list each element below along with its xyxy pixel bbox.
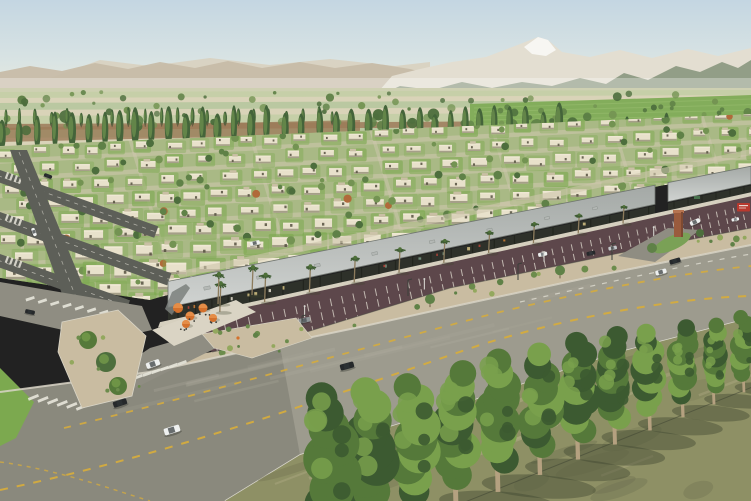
villa-parapet [501,209,517,211]
poplar-highlight [96,115,98,124]
villa-door [453,197,455,200]
farm-tree [99,90,103,94]
villa-shade [75,257,91,259]
verge-shrub [489,291,494,296]
villa-parapet [130,279,150,281]
villa-parapet [15,252,33,254]
villa-parapet [110,144,121,145]
street-tree [514,172,520,178]
villa-parapet [0,152,11,153]
villa-parapet [555,154,571,155]
cafe-chair [173,313,175,315]
farm-tree [593,104,597,108]
entry-tree [647,243,657,253]
street-tree [345,211,352,218]
poplar-highlight [191,109,193,121]
farm-tree [501,98,505,102]
shop-glint [467,247,470,250]
villa-shade [167,161,179,163]
villa-door [124,233,126,236]
villa-parapet [136,141,147,142]
tree-highlight [440,423,459,442]
villa-door [187,214,189,217]
palm-shadow [248,294,264,298]
villa-parapet [256,221,271,223]
villa-door [281,190,283,193]
poplar-highlight [127,109,129,121]
shop-glint [283,286,285,289]
tree-highlight [606,359,616,369]
tree-highlight [312,392,331,411]
poplar-highlight [50,114,53,124]
farm-tree [670,106,674,110]
tree-foliage [677,319,694,336]
poplar-highlight [282,116,286,136]
villa-parapet [315,218,332,220]
median-shrub [76,336,80,340]
villa-shade [439,151,452,153]
poplar-highlight [382,109,386,133]
tree-highlight [565,387,580,402]
verge-shrub [537,272,541,276]
farm-tree [712,99,718,105]
palm-crown [578,213,581,216]
tree-shade-side [685,352,694,361]
palm-crown [623,205,626,208]
cafe-chair [205,314,207,316]
villa-door [89,235,91,238]
tree-shade-side [616,386,629,399]
tree-highlight [640,359,652,371]
villa-wing [149,259,158,263]
median-shrub [116,388,120,392]
villa-parapet [241,137,253,138]
street-tree [647,147,652,152]
street-tree [169,241,176,248]
shop-glint [479,245,481,247]
villa-parapet [278,169,294,170]
villa-parapet [61,214,78,216]
villa-shade [94,186,109,188]
street-tree [186,174,192,180]
villa-door [71,183,73,185]
villa-door [35,148,37,150]
bed-shrub [271,344,275,348]
poplar-highlight [65,110,67,122]
villa-wing [41,179,47,182]
villa-shade [582,142,594,144]
villa-shade [229,161,241,163]
shop-glint [231,297,233,300]
street-tree [486,155,493,162]
villa-shade [1,242,15,244]
villa-door [471,146,473,148]
villa-wing [304,202,311,205]
villa-door [638,119,640,121]
cafe-chair [183,313,185,315]
villa-door [170,197,172,200]
villa-wing [694,128,699,131]
villa-parapet [608,136,623,137]
villa-parapet [216,138,230,139]
verge-shrub [454,291,457,294]
villa-door [262,173,264,175]
villa-shade [662,139,677,141]
street-tree [501,142,509,150]
street-tree [146,139,154,147]
poplar-highlight [264,109,268,134]
farm-tree [672,91,679,98]
villa-parapet [347,219,361,221]
villa-door [114,145,116,147]
villa-parapet [521,139,533,140]
villa-parapet [254,171,267,172]
villa-shade [334,206,350,208]
villa-shade [421,205,434,207]
villa-door [576,194,578,197]
palm-crown [533,222,536,225]
villa-door [490,178,492,181]
farm-tree [154,111,160,117]
villa-door [411,215,413,218]
villa-wing [401,177,408,180]
street-tree [609,121,616,128]
villa-door [615,188,617,191]
bed-shrub [246,324,250,328]
farm-tree [336,92,339,95]
farm-tree [523,97,528,102]
villa-door [313,169,315,171]
villa-door [375,185,377,188]
villa-wing [135,293,143,297]
tree-highlight [599,335,611,347]
street-tree [92,167,100,175]
villa-parapet [432,127,444,128]
tree-highlight [672,344,681,353]
villa-door [259,158,261,160]
tree-highlight [304,409,327,432]
villa-shade [241,141,253,143]
cafe-chair [211,322,213,324]
palm-crown [443,239,446,242]
street-tree [320,178,325,183]
villa-shade [406,151,420,153]
farm-tree [609,111,617,119]
villa-door [387,148,389,150]
street-tree [310,163,317,170]
tree-highlight [358,416,373,431]
villa-door [344,188,346,191]
villa-shade [192,146,205,148]
villa-door [97,184,99,186]
farm-tree [43,95,51,103]
villa-door [146,164,148,166]
villa-door [290,154,292,156]
farm-tree [273,91,277,95]
street-tree [344,195,352,203]
villa-door [290,224,292,227]
verge-shrub [709,240,712,243]
villa-shade [49,205,65,207]
villa-door [19,257,21,260]
tree-highlight [705,362,712,369]
farm-tree [70,92,75,97]
street-tree [356,221,363,228]
poplar-highlight [80,114,82,123]
cafe-chair [199,313,201,315]
poplar-highlight [16,123,20,142]
tree-shade-side [652,373,663,384]
villa-wing [232,154,237,157]
verge-shrub [743,236,747,240]
villa-door [527,141,529,143]
villa-shade [529,165,545,167]
farm-tree [670,101,676,107]
villa-wing [338,182,345,185]
poplar-highlight [223,113,225,122]
villa-shade [685,118,698,120]
villa-door [706,151,708,153]
villa-door [379,134,381,136]
villa-parapet [256,156,271,157]
villa-door [284,206,286,209]
villa-parapet [189,174,202,175]
street-tree [493,171,502,180]
villa-door [342,202,344,205]
villa-door [514,179,516,182]
villa-shade [403,133,414,135]
villa-shade [130,286,150,288]
poplar-highlight [144,110,146,121]
poplar-highlight [231,110,235,136]
tree-foliage [527,342,551,366]
villa-door [279,173,281,175]
palm-crown [264,273,268,277]
poplar-highlight [165,111,170,137]
tree-shade-side [581,377,593,389]
villa-door [306,208,308,211]
street-tree [589,157,595,163]
villa-parapet [128,179,142,180]
tree-shade-side [333,482,350,499]
villa-shade [93,222,108,224]
villa-wing [350,149,356,152]
villa-wing [162,192,168,195]
villa-shade [61,221,78,223]
poplar-highlight [52,116,56,140]
tree-shade-side [458,439,473,454]
villa-door [221,191,223,194]
villa-shade [84,238,103,240]
villa-door [199,229,201,232]
villa-shade [168,232,187,234]
villa-door [455,183,457,186]
villa-wing [482,173,488,176]
villa-wing [197,223,204,226]
villa-shade [107,166,119,168]
farm-tree [583,113,592,122]
street-tree [155,156,163,164]
bed-shrub [227,345,233,351]
villa-parapet [603,170,618,171]
verge-shrub [730,242,735,247]
villa-wing [124,209,131,212]
villa-parapet [550,140,564,141]
rendering-canvas: Aerial architectural rendering of a mast… [0,0,751,501]
villa-shade [160,201,174,203]
farm-tree [440,98,445,103]
villa-door [113,201,115,204]
street-tree [451,161,457,167]
villa-wing [231,237,239,240]
villa-shade [364,190,380,192]
farm-tree [528,95,534,101]
villa-door [359,135,361,137]
villa-parapet [439,145,452,146]
villa-shade [321,155,334,157]
villa-shade [86,274,104,276]
farm-tree [153,103,159,109]
villa-door [176,158,178,160]
villa-door [420,163,422,165]
villa-shade [481,181,495,183]
shop-glint [188,306,190,309]
villa-door [219,139,221,141]
villa-shade [521,145,533,147]
street-tree [388,197,396,205]
cafe-chair [193,320,195,322]
street-tree [17,239,25,247]
farm-tree [178,93,185,100]
villa-shade [107,202,124,204]
villa-wing [628,167,634,170]
villa-shade [547,180,564,182]
villa-door [629,171,631,174]
villa-shade [141,167,156,169]
villa-parapet [354,167,369,168]
villa-parapet [471,158,487,159]
villa-door [435,131,437,133]
cafe-chair [180,328,182,330]
villa-door [664,152,666,154]
villa-shade [638,158,653,160]
villa-door [234,243,236,246]
villa-shade [491,133,505,135]
poplar-highlight [116,114,120,138]
street-tree [373,196,380,203]
car-glass [302,318,307,323]
villa-parapet [34,147,46,148]
villa-parapet [161,175,174,176]
villa-parapet [349,134,363,135]
poplar-highlight [102,116,106,139]
villa-wing [429,213,437,216]
sign-text-line [739,205,748,206]
street-tree [522,157,528,163]
bed-shrub [253,333,258,338]
villa-door [161,215,163,218]
villa-parapet [604,155,616,156]
villa-shade [462,131,474,133]
street-tree [120,159,126,165]
villa-parapet [87,147,98,148]
villa-parapet [321,150,334,151]
villa-wing [470,141,476,144]
villa-door [21,203,23,206]
villa-shade [42,169,54,171]
villa-door [607,157,609,159]
villa-shade [223,178,238,180]
villa-door [609,172,611,175]
villa-door [576,123,578,125]
shop-glint [193,305,195,308]
villa-parapet [582,138,594,139]
poplar-highlight [86,118,90,140]
farm-tree [21,125,31,135]
villa-door [306,190,308,193]
median-shrub [138,385,141,388]
street-tree [73,143,79,149]
villa-shade [254,177,267,179]
villa-parapet [272,237,288,239]
villa-parapet [208,208,222,210]
villa-parapet [663,148,679,149]
villa-shade [193,251,211,253]
villa-door [149,252,151,255]
verge-tree [555,265,565,275]
poplar-highlight [331,113,333,122]
villa-parapet [167,157,179,158]
villa-door [164,249,166,252]
villa-door [322,223,324,226]
villa-parapet [403,213,420,215]
villa-shade [110,149,121,151]
tree-shade-side [716,340,723,347]
shop-glint [583,223,586,226]
bed-shrub [278,350,281,353]
villa-door [667,134,669,136]
villa-door [405,129,407,131]
villa-parapet [738,163,751,164]
villa-door [203,250,205,253]
villa-shade [450,187,466,189]
poplar-highlight [176,109,178,121]
villa-parapet [94,179,109,180]
farm-tree [407,118,418,129]
car-glass [611,246,615,250]
tree-shade-side [542,370,555,383]
villa-door [124,271,127,274]
villa-shade [304,193,320,195]
cafe-chair [185,328,187,330]
farm-tree [626,91,633,98]
villa-parapet [168,143,182,144]
tree-shade-side [716,370,723,377]
villa-shade [329,175,342,177]
villa-parapet [580,155,593,156]
villa-parapet [724,146,736,147]
bed-shrub [285,339,289,343]
villa-door [141,281,144,284]
median-shrub [70,360,75,365]
street-tree [181,210,187,216]
villa-door [195,196,197,199]
villa-door [224,175,226,177]
poplar-highlight [69,116,74,139]
villa-door [87,271,90,274]
villa-parapet [424,178,437,179]
median-shrub [105,389,109,393]
